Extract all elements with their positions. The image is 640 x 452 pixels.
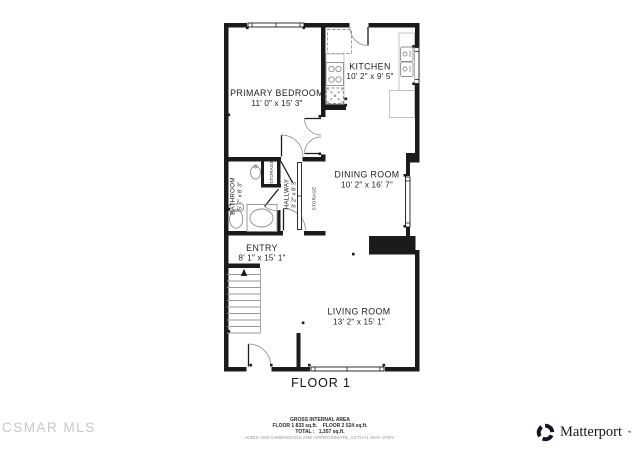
entry-name: ENTRY bbox=[246, 243, 278, 253]
bath-sink-icon bbox=[251, 165, 261, 179]
living-window bbox=[311, 367, 384, 371]
entry-dims: 8' 1" x 15' 1" bbox=[238, 254, 285, 263]
living-room-dims: 13' 2" x 15' 1" bbox=[333, 318, 385, 327]
hallway-door bbox=[284, 209, 306, 231]
kitchen-back-door bbox=[350, 27, 368, 46]
fireplace bbox=[369, 236, 416, 255]
refrigerator-icon bbox=[328, 30, 352, 54]
dishwasher-icon bbox=[327, 88, 344, 104]
dining-window bbox=[406, 177, 411, 227]
area-total: TOTAL : 1,357 sq.ft. bbox=[180, 429, 460, 435]
room-label-storage-bath: STORAGE bbox=[269, 160, 274, 184]
room-label-bathroom: BATHROOM 5' 7" x 8' 3" bbox=[230, 177, 244, 215]
floorplan-page: PRIMARY BEDROOM 11' 0" x 15' 3" KITCHEN … bbox=[0, 0, 640, 452]
room-label-entry: ENTRY 8' 1" x 15' 1" bbox=[238, 243, 285, 263]
primary-bedroom-dims: 11' 0" x 15' 3" bbox=[251, 99, 302, 108]
kitchen-name: KITCHEN bbox=[349, 62, 390, 72]
kitchen-window bbox=[415, 48, 420, 84]
storage-bath-name: STORAGE bbox=[269, 160, 274, 184]
primary-bedroom-name: PRIMARY BEDROOM bbox=[230, 88, 324, 98]
bedroom-window bbox=[248, 23, 304, 27]
kitchen-dims: 10' 2" x 9' 5" bbox=[346, 72, 393, 81]
stove-icon bbox=[326, 63, 344, 86]
room-label-dining-room: DINING ROOM 10' 2" x 16' 7" bbox=[335, 170, 400, 190]
area-disclaimer: SIZES AND DIMENSIONS ARE APPROXIMATE, AC… bbox=[180, 436, 460, 442]
matterport-wordmark: Matterport bbox=[560, 424, 622, 441]
living-room-name: LIVING ROOM bbox=[327, 307, 390, 317]
bathroom-name: BATHROOM bbox=[230, 177, 237, 215]
bedroom-closet-doors bbox=[305, 119, 322, 154]
storage-hall-name: STORAGE bbox=[311, 187, 316, 211]
matterport-logo-icon bbox=[536, 423, 555, 442]
matterport-trademark: ™ bbox=[627, 430, 632, 435]
floor-title: FLOOR 1 bbox=[291, 376, 351, 390]
dining-room-dims: 10' 2" x 16' 7" bbox=[341, 181, 393, 190]
bathroom-dims: 5' 7" x 8' 3" bbox=[238, 182, 244, 210]
area-summary: GROSS INTERNAL AREA FLOOR 1 833 sq.ft. F… bbox=[180, 417, 460, 442]
dining-room-name: DINING ROOM bbox=[335, 170, 400, 180]
hallway-dims: 3' 2" x 8' 3" bbox=[292, 180, 298, 208]
watermark: CSMAR MLS bbox=[2, 420, 96, 435]
bedroom-door bbox=[282, 135, 304, 157]
bathtub-icon bbox=[247, 205, 277, 232]
floor-plan-canvas: PRIMARY BEDROOM 11' 0" x 15' 3" KITCHEN … bbox=[0, 0, 640, 452]
bathroom-door bbox=[265, 189, 279, 211]
room-label-hallway: HALLWAY 3' 2" x 8' 3" bbox=[284, 179, 298, 210]
stairs-up-arrow-icon bbox=[241, 269, 247, 276]
hall-storage-slider bbox=[298, 163, 302, 230]
room-label-living-room: LIVING ROOM 13' 2" x 15' 1" bbox=[327, 307, 390, 327]
entry-door bbox=[249, 344, 272, 367]
stairs bbox=[227, 268, 261, 333]
room-label-storage-hall: STORAGE bbox=[311, 187, 316, 211]
matterport-brand: Matterport™ bbox=[536, 423, 632, 442]
room-label-primary-bedroom: PRIMARY BEDROOM 11' 0" x 15' 3" bbox=[230, 88, 324, 108]
hallway-name: HALLWAY bbox=[284, 179, 291, 210]
kitchen-sink-icon bbox=[401, 47, 414, 77]
room-label-kitchen: KITCHEN 10' 2" x 9' 5" bbox=[346, 62, 393, 82]
